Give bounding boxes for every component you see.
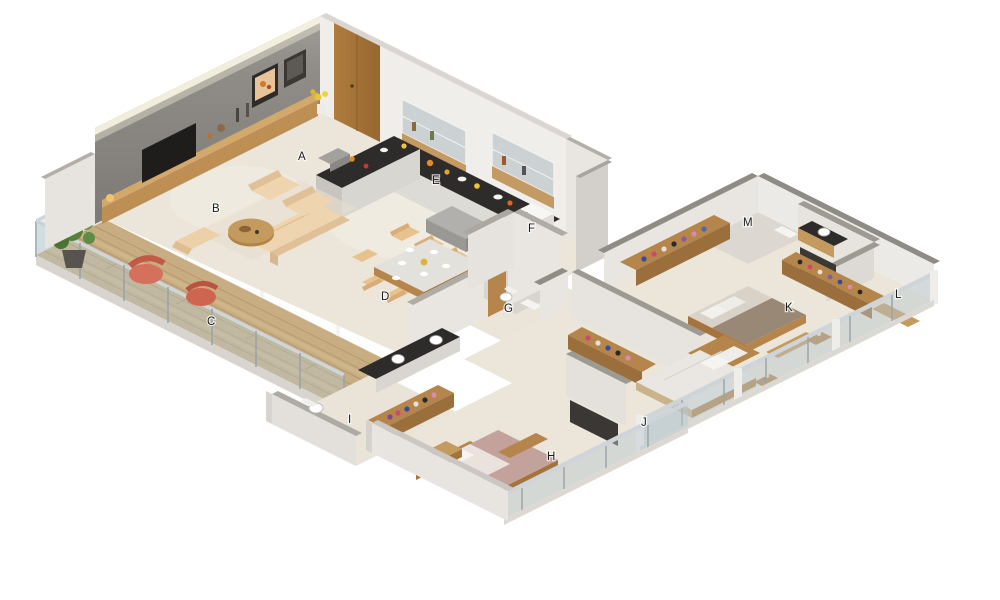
room-label-d: D bbox=[381, 291, 389, 303]
room-label-a: A bbox=[298, 151, 306, 163]
room-label-j: J bbox=[641, 417, 647, 429]
room-label-i: I bbox=[348, 414, 351, 426]
room-label-m: M bbox=[743, 217, 753, 229]
room-label-b: B bbox=[212, 203, 220, 215]
room-label-k: K bbox=[785, 302, 793, 314]
floor-plan-figure: A B C D E F G H I J K L M bbox=[0, 0, 1000, 600]
floor-plan-canvas: A B C D E F G H I J K L M bbox=[0, 0, 1000, 600]
room-label-h: H bbox=[547, 451, 555, 463]
room-label-e: E bbox=[432, 175, 440, 187]
centerpiece bbox=[421, 259, 428, 266]
room-label-f: F bbox=[528, 223, 535, 235]
coffee-table bbox=[228, 219, 274, 247]
room-label-c: C bbox=[207, 316, 215, 328]
room-label-g: G bbox=[504, 303, 513, 315]
room-label-l: L bbox=[895, 289, 902, 301]
